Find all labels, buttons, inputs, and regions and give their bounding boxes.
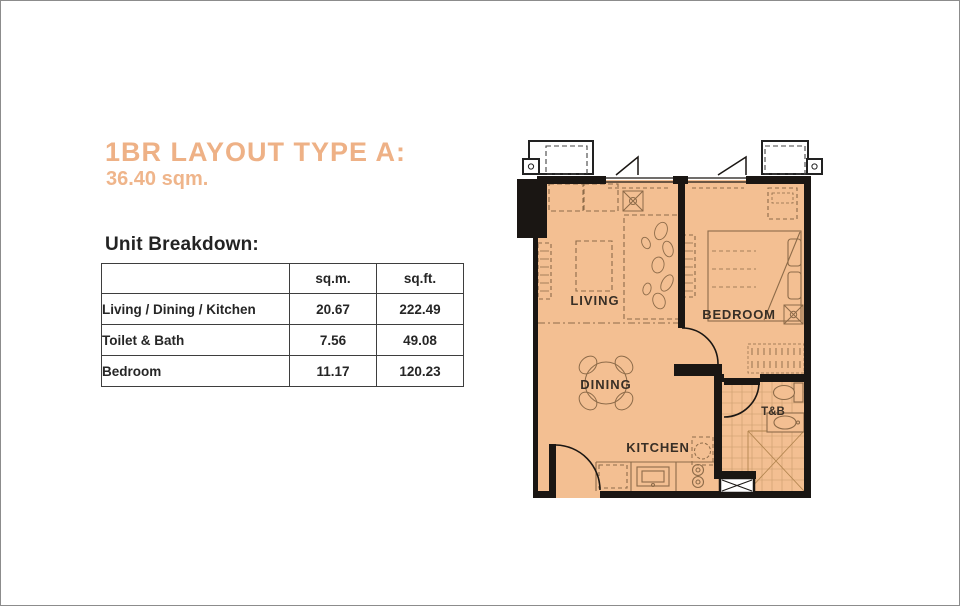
- row-sqm: 11.17: [290, 356, 377, 387]
- dining-label: DINING: [580, 377, 632, 392]
- ac-condenser-icon: [807, 159, 822, 174]
- row-sqft: 120.23: [377, 356, 464, 387]
- awning-window-icon: [616, 157, 638, 175]
- bedroom-label: BEDROOM: [702, 307, 776, 322]
- ac-ledge-left: [523, 141, 593, 174]
- page-title: 1BR LAYOUT TYPE A:: [105, 137, 406, 168]
- tnb-door-leaf: [724, 378, 760, 385]
- flyer-page: 1BR LAYOUT TYPE A: 36.40 sqm. Unit Break…: [0, 0, 960, 606]
- header-sqft: sq.ft.: [377, 264, 464, 294]
- header-sqm: sq.m.: [290, 264, 377, 294]
- row-label: Living / Dining / Kitchen: [102, 294, 290, 325]
- row-sqm: 20.67: [290, 294, 377, 325]
- unit-breakdown-table: sq.m. sq.ft. Living / Dining / Kitchen 2…: [101, 263, 464, 387]
- wall-column: [517, 179, 547, 238]
- row-sqft: 222.49: [377, 294, 464, 325]
- kitchen-label: KITCHEN: [626, 440, 689, 455]
- table-row: Toilet & Bath 7.56 49.08: [102, 325, 464, 356]
- table-row: Living / Dining / Kitchen 20.67 222.49: [102, 294, 464, 325]
- tnb-label: T&B: [761, 406, 785, 418]
- table-header-row: sq.m. sq.ft.: [102, 264, 464, 294]
- entrance-door-leaf: [549, 444, 556, 492]
- ac-condenser-icon: [523, 159, 539, 174]
- ac-ledge-right: [762, 141, 822, 174]
- row-sqft: 49.08: [377, 325, 464, 356]
- row-label: Toilet & Bath: [102, 325, 290, 356]
- header-blank-cell: [102, 264, 290, 294]
- row-label: Bedroom: [102, 356, 290, 387]
- row-sqm: 7.56: [290, 325, 377, 356]
- table-row: Bedroom 11.17 120.23: [102, 356, 464, 387]
- page-subtitle: 36.40 sqm.: [106, 168, 208, 191]
- vent-shaft: [720, 478, 754, 493]
- unit-breakdown-heading: Unit Breakdown:: [105, 234, 259, 256]
- awning-window-icon: [718, 157, 746, 175]
- living-label: LIVING: [570, 293, 619, 308]
- floor-plan: LIVING BEDROOM DINING T&B KITCHEN: [496, 131, 831, 503]
